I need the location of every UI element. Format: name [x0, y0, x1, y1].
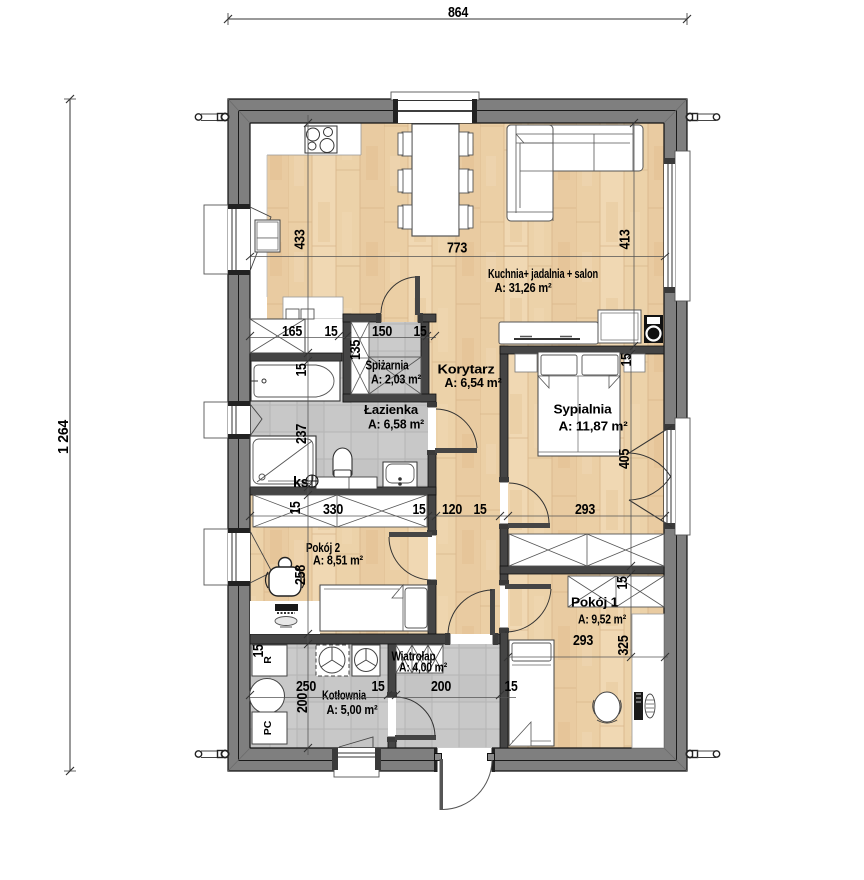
- svg-text:15: 15: [372, 679, 385, 695]
- svg-text:15: 15: [294, 363, 310, 376]
- svg-text:200: 200: [431, 679, 451, 695]
- svg-text:A: 31,26 m²: A: 31,26 m²: [495, 280, 553, 295]
- svg-text:15: 15: [288, 501, 304, 514]
- svg-text:325: 325: [616, 635, 632, 655]
- svg-text:405: 405: [617, 449, 633, 469]
- svg-text:237: 237: [294, 424, 310, 444]
- svg-text:Łazienka: Łazienka: [364, 402, 419, 417]
- svg-text:A: 5,00 m²: A: 5,00 m²: [327, 702, 379, 717]
- svg-text:15: 15: [619, 353, 635, 366]
- svg-text:165: 165: [282, 324, 302, 340]
- svg-text:Pokój 1: Pokój 1: [571, 595, 618, 610]
- svg-text:15: 15: [615, 576, 631, 589]
- svg-text:250: 250: [296, 679, 316, 695]
- svg-text:433: 433: [293, 229, 309, 249]
- svg-text:Kotłownia: Kotłownia: [322, 688, 367, 703]
- svg-text:A: 2,03 m²: A: 2,03 m²: [371, 372, 422, 387]
- svg-text:864: 864: [448, 5, 468, 21]
- svg-text:15: 15: [505, 679, 518, 695]
- svg-text:773: 773: [447, 241, 467, 257]
- svg-text:258: 258: [293, 565, 309, 585]
- svg-text:A: 11,87 m²: A: 11,87 m²: [559, 419, 629, 434]
- svg-text:A: 6,54 m²: A: 6,54 m²: [445, 375, 503, 390]
- svg-text:135: 135: [348, 340, 364, 360]
- svg-text:15: 15: [414, 324, 427, 340]
- svg-text:150: 150: [372, 324, 392, 340]
- svg-text:413: 413: [618, 229, 634, 249]
- svg-text:Sypialnia: Sypialnia: [554, 402, 613, 417]
- svg-text:15: 15: [325, 324, 338, 340]
- svg-text:15: 15: [413, 502, 426, 518]
- svg-text:1 264: 1 264: [56, 420, 72, 454]
- svg-text:15: 15: [251, 644, 267, 657]
- svg-text:A: 6,58 m²: A: 6,58 m²: [368, 417, 425, 432]
- svg-text:120: 120: [442, 502, 462, 518]
- svg-text:PC: PC: [262, 720, 274, 735]
- svg-text:A: 8,51 m²: A: 8,51 m²: [313, 553, 364, 568]
- svg-text:Spiżarnia: Spiżarnia: [366, 358, 410, 373]
- svg-text:Kuchnia+ jadalnia + salon: Kuchnia+ jadalnia + salon: [488, 266, 598, 281]
- svg-text:293: 293: [573, 633, 593, 649]
- svg-text:330: 330: [323, 502, 343, 518]
- svg-text:A: 4,00 m²: A: 4,00 m²: [399, 660, 448, 675]
- svg-text:15: 15: [474, 502, 487, 518]
- svg-text:200: 200: [295, 693, 311, 713]
- svg-text:A: 9,52 m²: A: 9,52 m²: [578, 612, 627, 627]
- svg-text:293: 293: [575, 502, 595, 518]
